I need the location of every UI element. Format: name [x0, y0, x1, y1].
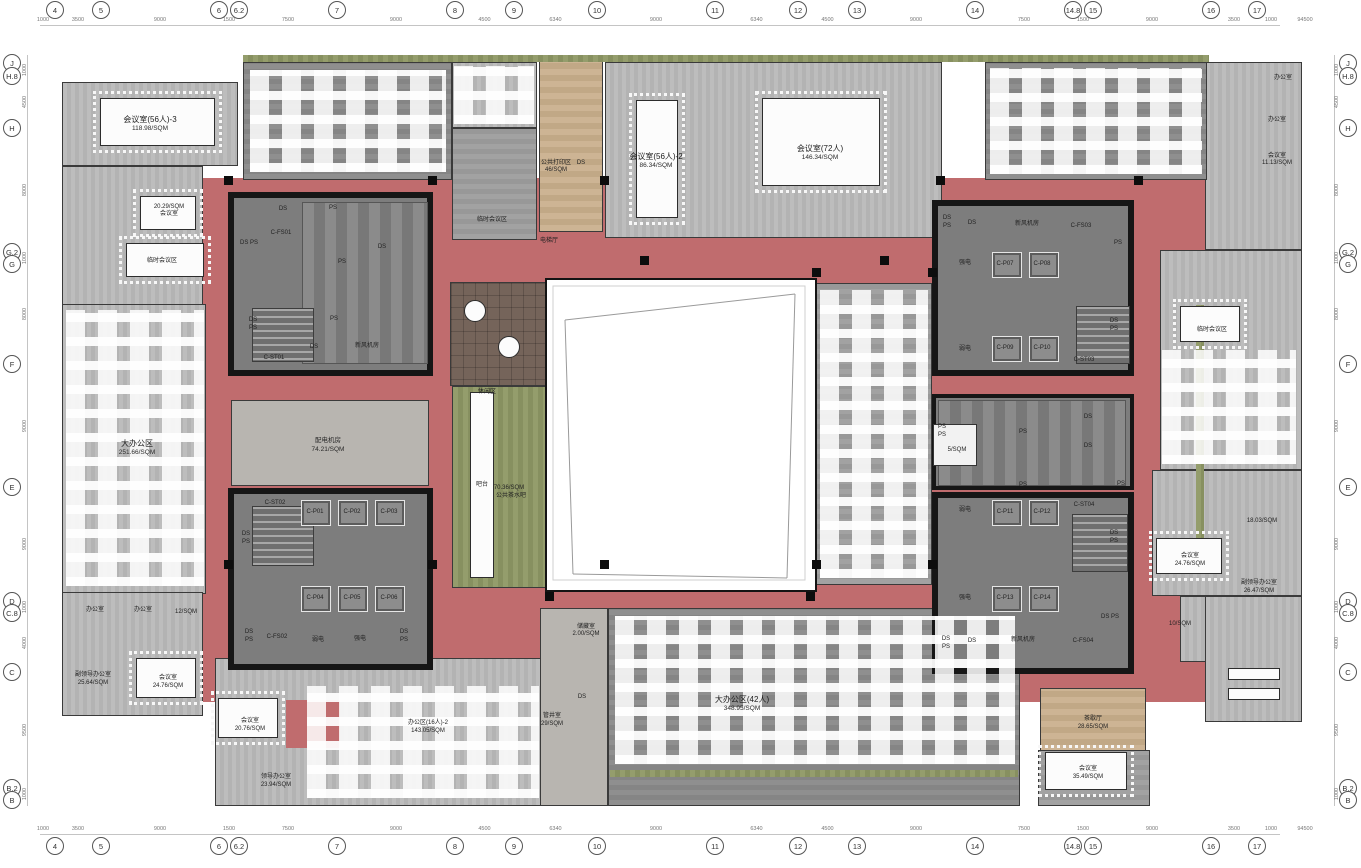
dim-right-0: 1000 — [1334, 63, 1340, 75]
label-DS: DS — [968, 220, 976, 226]
dim-bottom-4: 9000 — [390, 826, 402, 832]
label-办公室: 办公室 — [86, 607, 104, 613]
sofa-1 — [1228, 668, 1280, 680]
round-table-2 — [498, 336, 520, 358]
label-C-P08: C-P08 — [1033, 261, 1050, 267]
desk-cluster-north — [250, 70, 446, 172]
dim-right-5: 9000 — [1334, 419, 1340, 431]
dim-bottom-7: 9000 — [650, 826, 662, 832]
label-PS: PS — [329, 205, 337, 211]
grid-bubble-bottom-6.2: 6.2 — [230, 837, 248, 855]
grid-bubble-right-C.8: C.8 — [1339, 604, 1357, 622]
dim-bottom-edge-right: 1000 — [1265, 826, 1277, 832]
grid-bubble-left-E: E — [3, 478, 21, 496]
grid-bubble-top-9: 9 — [505, 1, 523, 19]
grid-bubble-bottom-9: 9 — [505, 837, 523, 855]
grid-bubble-top-7: 7 — [328, 1, 346, 19]
label-大办公区: 大办公区 — [121, 440, 153, 448]
label-DS: DS — [249, 317, 257, 323]
grid-bubble-top-16: 16 — [1202, 1, 1220, 19]
label-新风机房: 新风机房 — [1015, 221, 1039, 227]
dim-bottom-11: 7500 — [1018, 826, 1030, 832]
dim-top-12: 1500 — [1077, 17, 1089, 23]
grid-bubble-bottom-4: 4 — [46, 837, 64, 855]
label-PS: PS — [942, 644, 950, 650]
desk-cluster-east — [1162, 350, 1296, 464]
label-办公区(16人)-2: 办公区(16人)-2 — [408, 720, 448, 726]
label-C-P12: C-P12 — [1033, 509, 1050, 515]
grid-bubble-right-H.8: H.8 — [1339, 67, 1357, 85]
label-大办公区(42人): 大办公区(42人) — [715, 696, 769, 704]
desk-cluster-northeast — [990, 68, 1202, 174]
dim-bottom-2: 1500 — [223, 826, 235, 832]
dim-left-9: 9500 — [22, 724, 28, 736]
label-C-P10: C-P10 — [1033, 345, 1050, 351]
label-12/SQM: 12/SQM — [175, 609, 197, 615]
grid-bubble-right-F: F — [1339, 355, 1357, 373]
grid-bubble-left-H.8: H.8 — [3, 67, 21, 85]
label-临时会议区: 临时会议区 — [147, 258, 177, 264]
label-118.98/SQM: 118.98/SQM — [132, 126, 168, 133]
grid-bubble-top-13: 13 — [848, 1, 866, 19]
desk-cluster-south — [615, 616, 1015, 764]
dim-left-5: 9000 — [22, 419, 28, 431]
grid-bubble-top-11: 11 — [706, 1, 724, 19]
label-配电机房: 配电机房 — [315, 438, 341, 445]
dim-left-6: 9000 — [22, 538, 28, 550]
label-5/SQM: 5/SQM — [948, 447, 967, 453]
label-临时会议区: 临时会议区 — [477, 217, 507, 223]
label-弱电: 弱电 — [312, 637, 324, 643]
label-DS: DS — [1084, 443, 1092, 449]
label-C-ST02: C-ST02 — [265, 500, 286, 506]
dim-right-8: 4000 — [1334, 636, 1340, 648]
stair-c-st01 — [252, 308, 314, 362]
dim-bottom-8: 6340 — [750, 826, 762, 832]
round-table-1 — [464, 300, 486, 322]
label-348.95/SQM: 348.95/SQM — [724, 706, 761, 713]
dim-left-4: 8000 — [22, 308, 28, 320]
label-DS PS: DS PS — [240, 240, 258, 246]
label-35.49/SQM: 35.49/SQM — [1073, 774, 1103, 780]
dim-bottom-edge-left: 1000 — [37, 826, 49, 832]
label-C-ST01: C-ST01 — [264, 355, 285, 361]
grid-bubble-right-B: B — [1339, 791, 1357, 809]
label-23.94/SQM: 23.94/SQM — [261, 782, 291, 788]
label-会议室: 会议室 — [1181, 553, 1199, 559]
grid-bubble-left-F: F — [3, 355, 21, 373]
dim-top-5: 4500 — [478, 17, 490, 23]
dim-top-6: 6340 — [549, 17, 561, 23]
label-C-P01: C-P01 — [306, 509, 323, 515]
dim-bottom-0: 3500 — [72, 826, 84, 832]
label-24.76/SQM: 24.76/SQM — [1175, 561, 1205, 567]
dim-bottom-6: 6340 — [549, 826, 561, 832]
floor-plan-canvas: 会议室(56人)-3118.98/SQM20.29/SQM会议室临时会议区大办公… — [0, 0, 1361, 868]
column — [812, 560, 821, 569]
label-茶歇厅: 茶歇厅 — [1084, 716, 1102, 722]
dim-left-1: 4500 — [22, 96, 28, 108]
label-DS: DS — [577, 160, 585, 166]
label-251.66/SQM: 251.66/SQM — [119, 450, 156, 457]
label-143.05/SQM: 143.05/SQM — [411, 728, 445, 734]
dim-bottom-14: 3500 — [1228, 826, 1240, 832]
dim-bottom-9: 4500 — [821, 826, 833, 832]
dim-top-4: 9000 — [390, 17, 402, 23]
column — [224, 176, 233, 185]
label-26.47/SQM: 26.47/SQM — [1244, 588, 1274, 594]
dim-top-8: 6340 — [750, 17, 762, 23]
label-会议室(56人)-2: 会议室(56人)-2 — [629, 153, 682, 161]
dim-top-1: 9000 — [154, 17, 166, 23]
desk-cluster-southwest — [307, 686, 539, 798]
planter-bottom — [610, 770, 1018, 777]
label-PS: PS — [242, 539, 250, 545]
grid-bubble-bottom-14: 14 — [966, 837, 984, 855]
dim-right-7: 1000 — [1334, 601, 1340, 613]
label-C-P03: C-P03 — [380, 509, 397, 515]
dim-top-edge-left: 1000 — [37, 17, 49, 23]
dim-total-top: 94500 — [1297, 17, 1312, 23]
grid-bubble-bottom-15: 15 — [1084, 837, 1102, 855]
label-领导办公室: 领导办公室 — [261, 774, 291, 780]
label-C-FS02: C-FS02 — [267, 634, 288, 640]
south-shaft-strip — [540, 608, 608, 806]
dim-top-11: 7500 — [1018, 17, 1030, 23]
label-DS: DS — [968, 638, 976, 644]
column — [224, 560, 233, 569]
grid-bubble-left-H: H — [3, 119, 21, 137]
label-办公室: 办公室 — [134, 607, 152, 613]
label-会议室: 会议室 — [241, 718, 259, 724]
grid-bubble-bottom-11: 11 — [706, 837, 724, 855]
dim-left-10: 1000 — [22, 788, 28, 800]
grid-bubble-left-C: C — [3, 663, 21, 681]
label-25.64/SQM: 25.64/SQM — [78, 680, 108, 686]
dim-top-3: 7500 — [282, 17, 294, 23]
label-公共茶水吧: 公共茶水吧 — [496, 493, 526, 499]
dim-top-0: 3500 — [72, 17, 84, 23]
column — [428, 176, 437, 185]
dim-left-0: 1000 — [22, 63, 28, 75]
grid-bubble-right-H: H — [1339, 119, 1357, 137]
stair-c-st03 — [1076, 306, 1130, 364]
label-储藏室: 储藏室 — [577, 624, 595, 630]
label-PS: PS — [1114, 240, 1122, 246]
label-74.21/SQM: 74.21/SQM — [312, 447, 345, 454]
label-DS: DS — [242, 531, 250, 537]
label-C-ST03: C-ST03 — [1074, 357, 1095, 363]
label-C-P13: C-P13 — [996, 595, 1013, 601]
label-C-FS01: C-FS01 — [271, 230, 292, 236]
dim-right-3: 1000 — [1334, 252, 1340, 264]
dim-bottom-5: 4500 — [478, 826, 490, 832]
label-会议室(72人): 会议室(72人) — [797, 145, 843, 153]
dim-right-1: 4500 — [1334, 96, 1340, 108]
dim-right-10: 1000 — [1334, 788, 1340, 800]
label-DS: DS — [400, 629, 408, 635]
dim-line-bottom — [40, 834, 1280, 835]
dim-left-3: 1000 — [22, 252, 28, 264]
column — [1134, 176, 1143, 185]
grid-bubble-right-C: C — [1339, 663, 1357, 681]
column — [936, 176, 945, 185]
dim-top-edge-right: 1000 — [1265, 17, 1277, 23]
label-PS: PS — [249, 325, 257, 331]
dim-top-2: 1500 — [223, 17, 235, 23]
grid-bubble-bottom-10: 10 — [588, 837, 606, 855]
label-弱电: 弱电 — [959, 507, 971, 513]
meeting-table-east-temp — [1180, 306, 1240, 342]
label-PS: PS — [330, 316, 338, 322]
label-休闲区: 休闲区 — [478, 389, 496, 395]
label-29/SQM: 29/SQM — [541, 721, 563, 727]
column — [600, 560, 609, 569]
label-电梯厅: 电梯厅 — [540, 238, 558, 244]
grid-bubble-top-12: 12 — [789, 1, 807, 19]
label-C-P14: C-P14 — [1033, 595, 1050, 601]
label-强电: 强电 — [959, 595, 971, 601]
column — [928, 560, 937, 569]
grid-bubble-top-8: 8 — [446, 1, 464, 19]
desk-cluster-center-right — [820, 290, 928, 578]
washroom-west — [302, 202, 428, 364]
label-C-ST04: C-ST04 — [1074, 502, 1095, 508]
dim-bottom-1: 9000 — [154, 826, 166, 832]
dim-bottom-10: 9000 — [910, 826, 922, 832]
column — [428, 560, 437, 569]
grid-bubble-bottom-12: 12 — [789, 837, 807, 855]
label-新风机房: 新风机房 — [1011, 637, 1035, 643]
dim-top-10: 9000 — [910, 17, 922, 23]
dim-bottom-13: 9000 — [1146, 826, 1158, 832]
label-DS: DS — [279, 206, 287, 212]
atrium-skylight-lines — [547, 280, 811, 586]
label-18.03/SQM: 18.03/SQM — [1247, 518, 1277, 524]
label-2.00/SQM: 2.00/SQM — [572, 631, 599, 637]
grid-bubble-top-5: 5 — [92, 1, 110, 19]
label-DS: DS — [942, 636, 950, 642]
label-新风机房: 新风机房 — [355, 343, 379, 349]
label-DS: DS — [1110, 318, 1118, 324]
label-PS: PS — [938, 424, 946, 430]
dim-left-8: 4000 — [22, 636, 28, 648]
grid-bubble-left-G: G — [3, 255, 21, 273]
grid-bubble-bottom-14.8: 14.8 — [1064, 837, 1082, 855]
grid-bubble-right-G: G — [1339, 255, 1357, 273]
label-C-P06: C-P06 — [380, 595, 397, 601]
sofa-2 — [1228, 688, 1280, 700]
label-DS: DS — [1110, 530, 1118, 536]
center-talk-rooms — [450, 282, 546, 386]
grid-bubble-top-14: 14 — [966, 1, 984, 19]
column — [880, 256, 889, 265]
corner-suite — [1205, 596, 1302, 722]
label-20.76/SQM: 20.76/SQM — [235, 726, 265, 732]
label-PS: PS — [245, 637, 253, 643]
label-吧台: 吧台 — [476, 482, 488, 488]
dim-right-6: 9000 — [1334, 538, 1340, 550]
label-DS: DS — [378, 244, 386, 250]
east-top-rooms — [1205, 62, 1302, 250]
label-PS: PS — [1019, 482, 1027, 488]
grid-bubble-bottom-8: 8 — [446, 837, 464, 855]
dim-top-9: 4500 — [821, 17, 833, 23]
column — [600, 176, 609, 185]
label-强电: 强电 — [354, 636, 366, 642]
label-弱电: 弱电 — [959, 346, 971, 352]
central-atrium — [545, 278, 817, 592]
label-管井室: 管井室 — [543, 713, 561, 719]
grid-bubble-bottom-5: 5 — [92, 837, 110, 855]
label-10/SQM: 10/SQM — [1169, 621, 1191, 627]
dim-bottom-12: 1500 — [1077, 826, 1089, 832]
label-会议室: 会议室 — [1268, 153, 1286, 159]
column — [640, 256, 649, 265]
label-PS: PS — [1110, 538, 1118, 544]
label-C-P02: C-P02 — [343, 509, 360, 515]
grid-bubble-top-10: 10 — [588, 1, 606, 19]
dim-right-4: 8000 — [1334, 308, 1340, 320]
label-C-P05: C-P05 — [343, 595, 360, 601]
label-会议室: 会议室 — [159, 675, 177, 681]
label-PS: PS — [1019, 429, 1027, 435]
label-副领导办公室: 副领导办公室 — [1241, 580, 1277, 586]
desk-cluster-north-small — [454, 66, 534, 124]
label-DS: DS — [245, 629, 253, 635]
grid-bubble-bottom-13: 13 — [848, 837, 866, 855]
label-C-FS04: C-FS04 — [1073, 638, 1094, 644]
label-PS: PS — [1110, 326, 1118, 332]
dim-top-14: 3500 — [1228, 17, 1240, 23]
label-DS: DS — [310, 344, 318, 350]
label-C-P09: C-P09 — [996, 345, 1013, 351]
label-28.65/SQM: 28.65/SQM — [1078, 724, 1108, 730]
column — [806, 592, 815, 601]
dim-right-2: 8000 — [1334, 184, 1340, 196]
label-DS: DS — [578, 694, 586, 700]
label-C-P07: C-P07 — [996, 261, 1013, 267]
dim-right-9: 9500 — [1334, 724, 1340, 736]
label-24.76/SQM: 24.76/SQM — [153, 683, 183, 689]
label-DS: DS — [1084, 414, 1092, 420]
grid-bubble-right-E: E — [1339, 478, 1357, 496]
dim-left-2: 8000 — [22, 184, 28, 196]
grid-bubble-bottom-7: 7 — [328, 837, 346, 855]
column — [545, 592, 554, 601]
label-20.29/SQM: 20.29/SQM — [154, 204, 184, 210]
label-11.13/SQM: 11.13/SQM — [1262, 160, 1292, 166]
pantry-room — [933, 424, 977, 466]
grid-bubble-bottom-16: 16 — [1202, 837, 1220, 855]
label-PS: PS — [400, 637, 408, 643]
label-PS: PS — [1117, 481, 1125, 487]
label-70.36/SQM: 70.36/SQM — [494, 485, 524, 491]
label-DS: DS — [943, 215, 951, 221]
grid-bubble-left-C.8: C.8 — [3, 604, 21, 622]
label-46/SQM: 46/SQM — [545, 167, 567, 173]
column — [928, 268, 937, 277]
label-办公室: 办公室 — [1268, 117, 1286, 123]
label-PS: PS — [938, 432, 946, 438]
stair-c-st04 — [1072, 514, 1128, 572]
label-临时会议区: 临时会议区 — [1197, 327, 1227, 333]
dim-left-7: 1000 — [22, 601, 28, 613]
label-86.34/SQM: 86.34/SQM — [640, 163, 673, 170]
print-lounge-strip — [539, 60, 603, 232]
label-副领导办公室: 副领导办公室 — [75, 672, 111, 678]
dim-total-bottom: 94500 — [1297, 826, 1312, 832]
label-PS: PS — [943, 223, 951, 229]
label-公共打印区: 公共打印区 — [541, 160, 571, 166]
dim-line-top — [40, 25, 1280, 26]
north-temp-meeting — [452, 128, 537, 240]
conference-table-72 — [762, 98, 880, 186]
label-DS PS: DS PS — [1101, 614, 1119, 620]
column — [812, 268, 821, 277]
label-PS: PS — [338, 259, 346, 265]
dim-top-7: 9000 — [650, 17, 662, 23]
label-办公室: 办公室 — [1274, 75, 1292, 81]
dim-top-13: 9000 — [1146, 17, 1158, 23]
label-C-FS03: C-FS03 — [1071, 223, 1092, 229]
label-会议室: 会议室 — [1079, 766, 1097, 772]
label-强电: 强电 — [959, 260, 971, 266]
planter-top — [243, 55, 1209, 62]
label-C-P11: C-P11 — [997, 509, 1014, 515]
label-146.34/SQM: 146.34/SQM — [802, 155, 839, 162]
label-会议室: 会议室 — [160, 211, 178, 217]
dim-bottom-3: 7500 — [282, 826, 294, 832]
grid-bubble-top-17: 17 — [1248, 1, 1266, 19]
grid-bubble-left-B: B — [3, 791, 21, 809]
label-会议室(56人)-3: 会议室(56人)-3 — [123, 116, 176, 124]
grid-bubble-bottom-6: 6 — [210, 837, 228, 855]
label-C-P04: C-P04 — [306, 595, 323, 601]
grid-bubble-bottom-17: 17 — [1248, 837, 1266, 855]
